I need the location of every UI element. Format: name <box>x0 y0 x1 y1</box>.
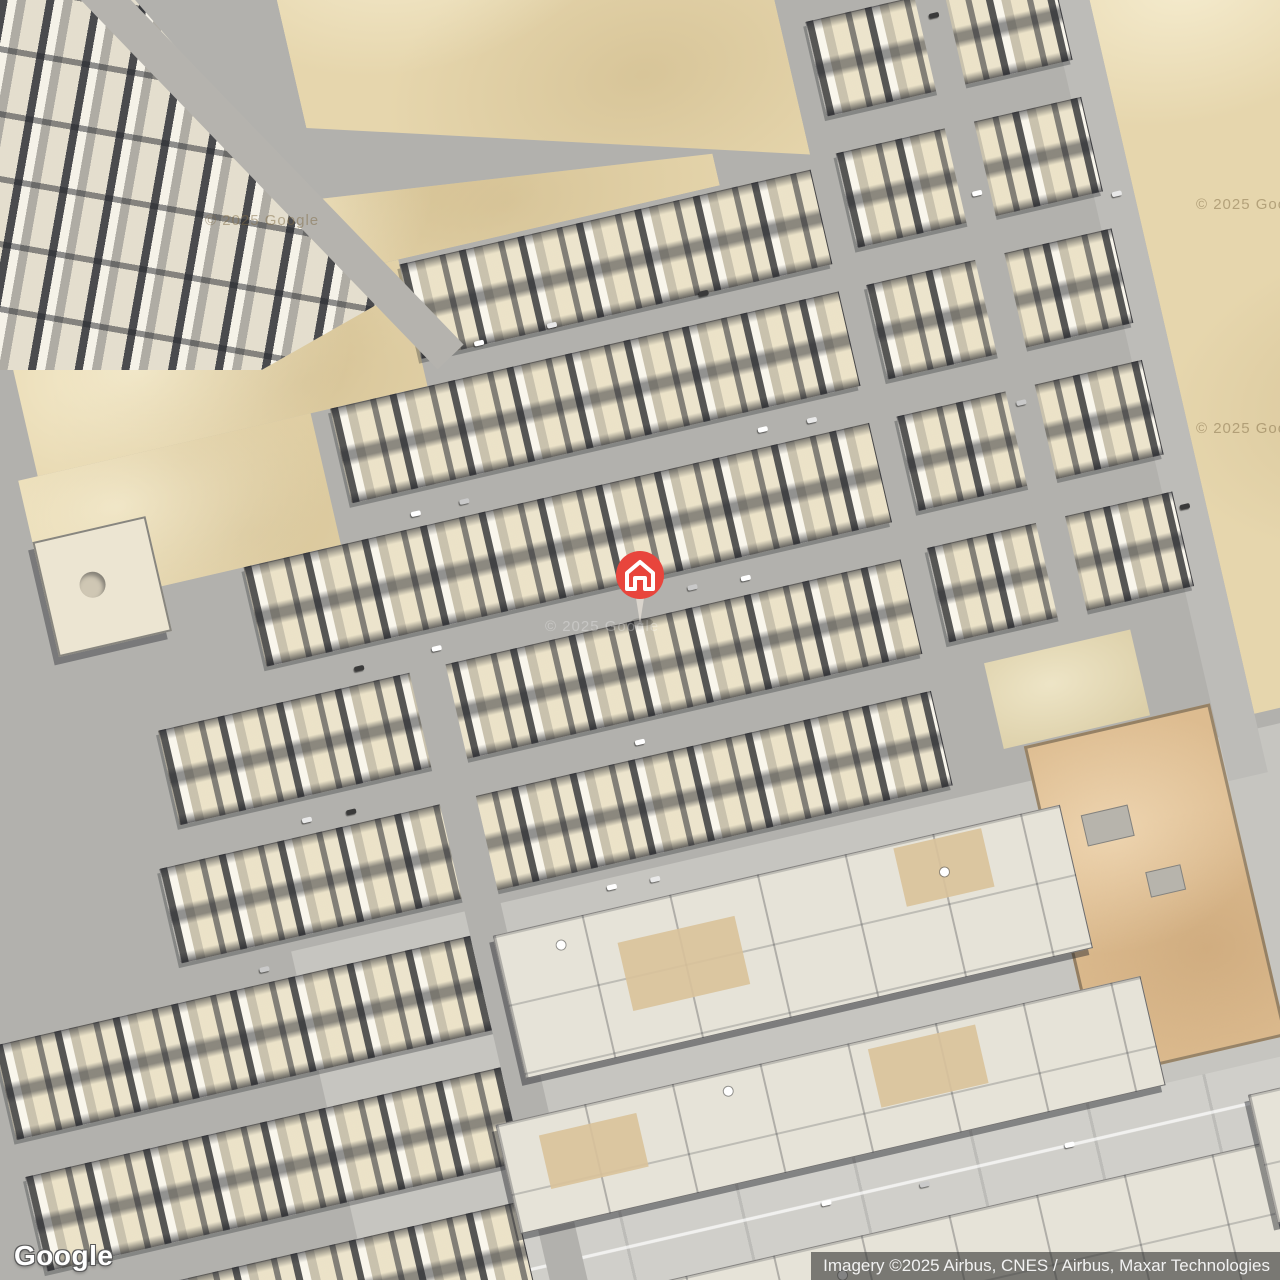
car <box>757 426 768 433</box>
car <box>302 816 313 823</box>
map-canvas[interactable]: © 2025 Google© 2025 Google© 2025 Google©… <box>0 0 1280 1280</box>
home-marker[interactable] <box>610 542 670 628</box>
marker-circle <box>616 551 664 599</box>
car <box>410 510 421 517</box>
car <box>807 417 818 424</box>
imagery-attribution: Imagery ©2025 Airbus, CNES / Airbus, Max… <box>811 1252 1280 1280</box>
marker-shadow <box>631 618 653 626</box>
car <box>354 665 365 672</box>
car <box>431 645 442 652</box>
car <box>687 584 698 591</box>
car <box>346 808 357 815</box>
car <box>698 290 709 297</box>
car <box>259 966 270 973</box>
car <box>459 498 470 505</box>
car <box>474 340 485 347</box>
google-logo[interactable]: Google <box>14 1240 113 1272</box>
car <box>740 575 751 582</box>
car <box>635 739 646 746</box>
